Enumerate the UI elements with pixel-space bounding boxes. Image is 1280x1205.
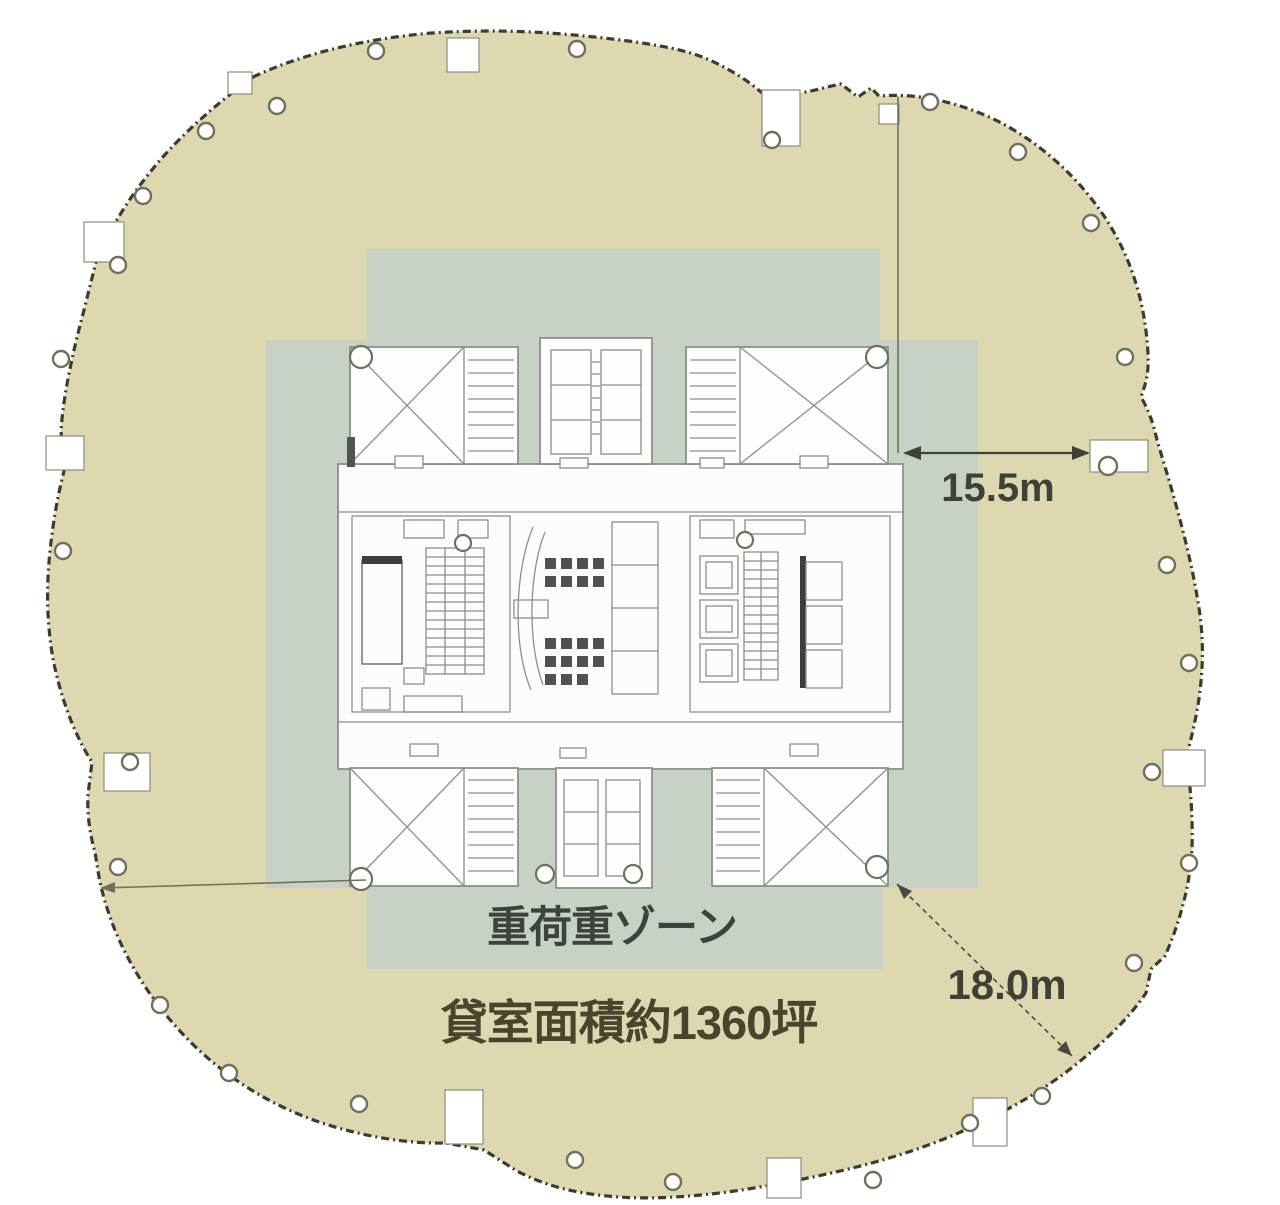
heavy-load-zone-label: 重荷重ゾーン bbox=[487, 904, 737, 952]
floor-plan-canvas: 15.5m 18.0m 重荷重ゾーン 貸室面積約1360坪 bbox=[0, 0, 1280, 1205]
dimension-label-15-5m: 15.5m bbox=[941, 466, 1054, 510]
core-elevator-bank-top bbox=[540, 338, 652, 464]
core-stair-shaft-bottom-right bbox=[712, 768, 888, 886]
core-edge-tick bbox=[347, 437, 355, 467]
dimension-label-18-0m: 18.0m bbox=[947, 961, 1066, 1008]
floor-plan-figure: 15.5m 18.0m 重荷重ゾーン 貸室面積約1360坪 bbox=[0, 0, 1280, 1205]
rentable-area-label: 貸室面積約1360坪 bbox=[441, 996, 818, 1049]
core-stair-shaft-bottom-left bbox=[350, 768, 518, 886]
core-stair-shaft-top-left bbox=[350, 347, 518, 464]
core-stair-shaft-top-right bbox=[686, 347, 888, 464]
core-plan bbox=[338, 338, 903, 890]
